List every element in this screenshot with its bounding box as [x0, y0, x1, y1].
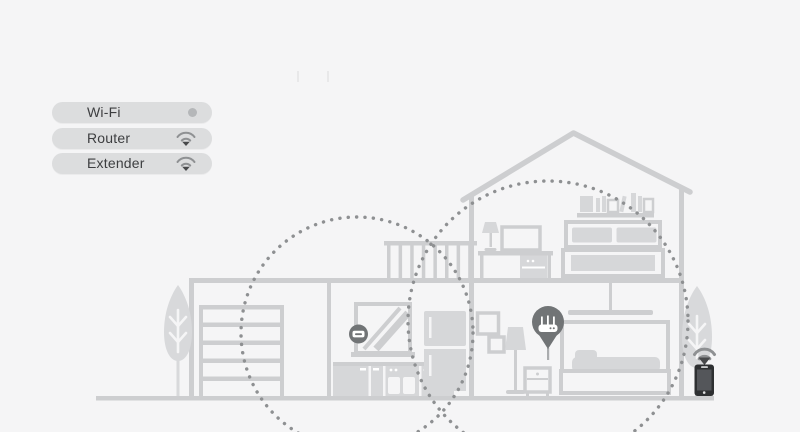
study-sofa — [563, 222, 663, 276]
right-wall — [679, 186, 684, 398]
ground-line — [96, 396, 714, 401]
floor-lamp — [505, 327, 526, 394]
faint-chimney-marks — [297, 71, 329, 82]
wifi-down-icon — [175, 128, 197, 149]
wall-picture-frames — [478, 313, 505, 352]
legend-pill-wifi[interactable]: Wi-Fi — [52, 102, 212, 123]
router-antenna — [541, 317, 543, 326]
second-floor-line — [189, 278, 684, 283]
legend-label-router: Router — [87, 128, 130, 149]
bed-base — [561, 371, 669, 393]
fridge — [424, 311, 466, 391]
desk-monitor — [502, 227, 540, 252]
house-illustration — [0, 0, 800, 432]
sink — [388, 377, 400, 394]
tree-left — [164, 285, 192, 396]
wifi-down-icon — [175, 153, 197, 174]
desk-lamp — [482, 222, 499, 251]
smartphone — [695, 365, 715, 397]
balcony-railing — [384, 241, 477, 278]
kitchen-wall — [327, 283, 331, 396]
legend-label-wifi: Wi-Fi — [87, 102, 121, 123]
wall-shelf-books — [577, 193, 654, 218]
study-desk — [478, 251, 553, 278]
legend-pill-router[interactable]: Router — [52, 128, 212, 149]
legend: Wi-Fi Router Extender — [52, 102, 212, 174]
bed — [561, 322, 669, 393]
legend-pill-extender[interactable]: Extender — [52, 153, 212, 174]
roof — [463, 133, 690, 200]
wifi-coverage-diagram: Wi-Fi Router Extender — [0, 0, 800, 432]
legend-label-extender: Extender — [87, 153, 145, 174]
nightstand — [525, 368, 550, 396]
pendant-light — [568, 283, 653, 315]
wifi-status-dot-icon — [188, 102, 197, 123]
extender-badge — [349, 325, 368, 344]
router-pin — [532, 306, 564, 360]
